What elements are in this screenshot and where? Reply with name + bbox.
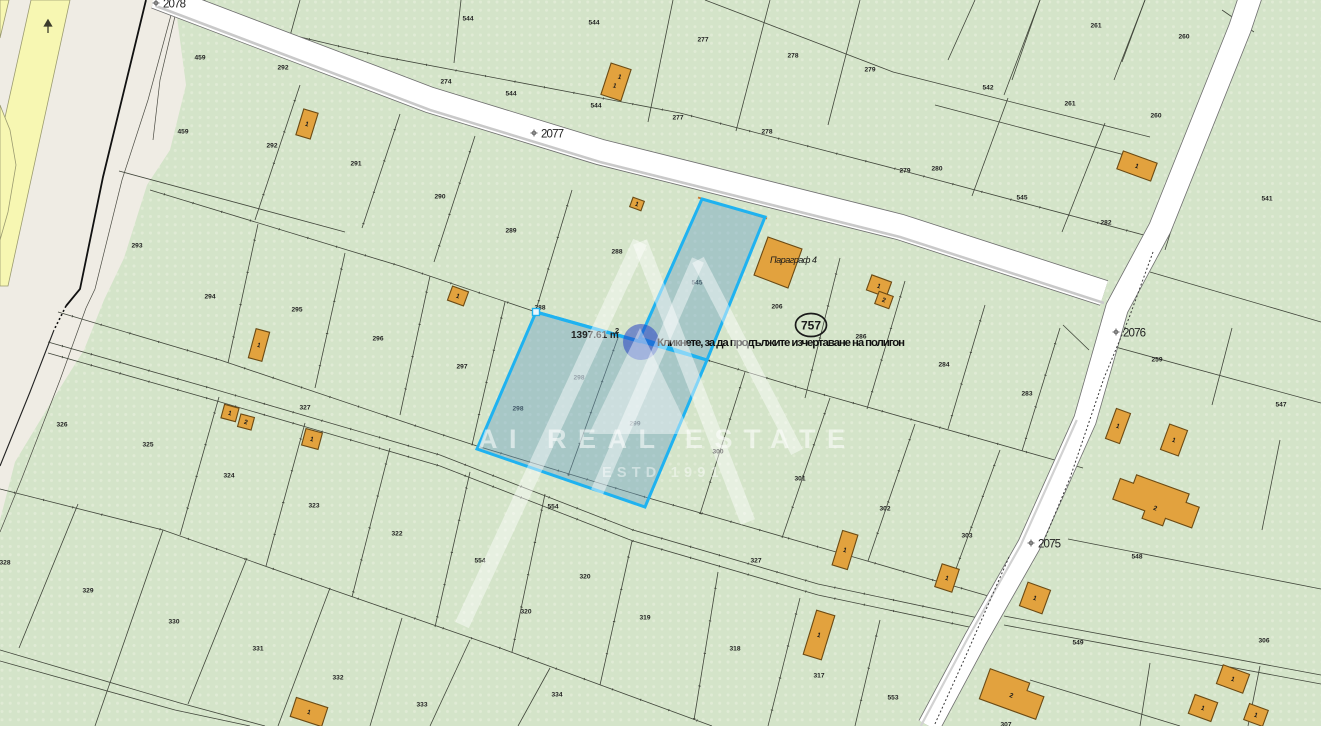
svg-text:277: 277 — [697, 36, 708, 43]
svg-text:277: 277 — [672, 114, 683, 121]
svg-text:553: 553 — [887, 694, 898, 701]
svg-text:459: 459 — [194, 54, 205, 61]
svg-text:322: 322 — [391, 530, 402, 537]
svg-text:554: 554 — [547, 503, 558, 510]
svg-text:260: 260 — [1178, 33, 1189, 40]
svg-text:545: 545 — [1016, 194, 1027, 201]
svg-text:2075: 2075 — [1038, 539, 1061, 551]
svg-text:549: 549 — [1072, 639, 1083, 646]
svg-text:2078: 2078 — [163, 0, 186, 11]
svg-text:259: 259 — [1151, 356, 1162, 363]
svg-text:278: 278 — [761, 128, 772, 135]
svg-text:326: 326 — [56, 421, 67, 428]
svg-text:320: 320 — [579, 573, 590, 580]
svg-text:279: 279 — [899, 167, 910, 174]
svg-text:284: 284 — [938, 361, 949, 368]
svg-text:Параграф 4: Параграф 4 — [770, 255, 817, 265]
svg-text:327: 327 — [299, 404, 310, 411]
svg-text:307: 307 — [1000, 721, 1011, 726]
svg-text:206: 206 — [771, 303, 782, 310]
svg-text:295: 295 — [291, 306, 302, 313]
svg-text:293: 293 — [131, 242, 142, 249]
svg-text:319: 319 — [639, 614, 650, 621]
svg-text:328: 328 — [0, 559, 11, 566]
svg-text:333: 333 — [416, 701, 427, 708]
svg-text:329: 329 — [82, 587, 93, 594]
svg-text:280: 280 — [931, 165, 942, 172]
svg-text:325: 325 — [142, 441, 153, 448]
svg-text:544: 544 — [590, 102, 601, 109]
svg-text:318: 318 — [729, 645, 740, 652]
svg-text:303: 303 — [961, 532, 972, 539]
svg-text:324: 324 — [223, 472, 234, 479]
svg-text:AI REAL ESTATE: AI REAL ESTATE — [478, 424, 857, 454]
svg-text:542: 542 — [982, 84, 993, 91]
svg-text:459: 459 — [177, 128, 188, 135]
svg-text:260: 260 — [1150, 112, 1161, 119]
svg-text:292: 292 — [277, 64, 288, 71]
svg-text:ESTD 1991: ESTD 1991 — [602, 465, 724, 481]
svg-text:278: 278 — [787, 52, 798, 59]
svg-text:331: 331 — [252, 645, 263, 652]
svg-text:279: 279 — [864, 66, 875, 73]
svg-text:302: 302 — [879, 505, 890, 512]
svg-text:330: 330 — [168, 618, 179, 625]
svg-text:2077: 2077 — [541, 129, 564, 141]
svg-text:274: 274 — [440, 78, 451, 85]
svg-text:261: 261 — [1090, 22, 1101, 29]
svg-text:297: 297 — [456, 363, 467, 370]
svg-text:291: 291 — [350, 160, 361, 167]
svg-text:334: 334 — [551, 691, 562, 698]
svg-text:2: 2 — [615, 326, 619, 335]
svg-text:294: 294 — [204, 293, 215, 300]
svg-text:283: 283 — [1021, 390, 1032, 397]
svg-text:544: 544 — [505, 90, 516, 97]
svg-text:289: 289 — [505, 227, 516, 234]
svg-text:548: 548 — [1131, 553, 1142, 560]
svg-text:Кликнете, за да продължите изч: Кликнете, за да продължите изчертаване н… — [657, 337, 905, 349]
svg-text:301: 301 — [794, 475, 805, 482]
svg-text:2076: 2076 — [1123, 328, 1146, 340]
svg-text:547: 547 — [1275, 401, 1286, 408]
svg-text:292: 292 — [266, 142, 277, 149]
svg-text:290: 290 — [434, 193, 445, 200]
svg-text:288: 288 — [611, 248, 622, 255]
svg-text:332: 332 — [332, 674, 343, 681]
svg-text:320: 320 — [520, 608, 531, 615]
svg-text:306: 306 — [1258, 637, 1269, 644]
svg-text:323: 323 — [308, 502, 319, 509]
svg-text:317: 317 — [813, 672, 824, 679]
svg-text:282: 282 — [1100, 219, 1111, 226]
svg-text:544: 544 — [462, 15, 473, 22]
svg-text:541: 541 — [1261, 195, 1272, 202]
svg-text:544: 544 — [588, 19, 599, 26]
svg-text:327: 327 — [750, 557, 761, 564]
svg-text:757: 757 — [801, 319, 821, 333]
svg-text:261: 261 — [1064, 100, 1075, 107]
svg-text:296: 296 — [372, 335, 383, 342]
